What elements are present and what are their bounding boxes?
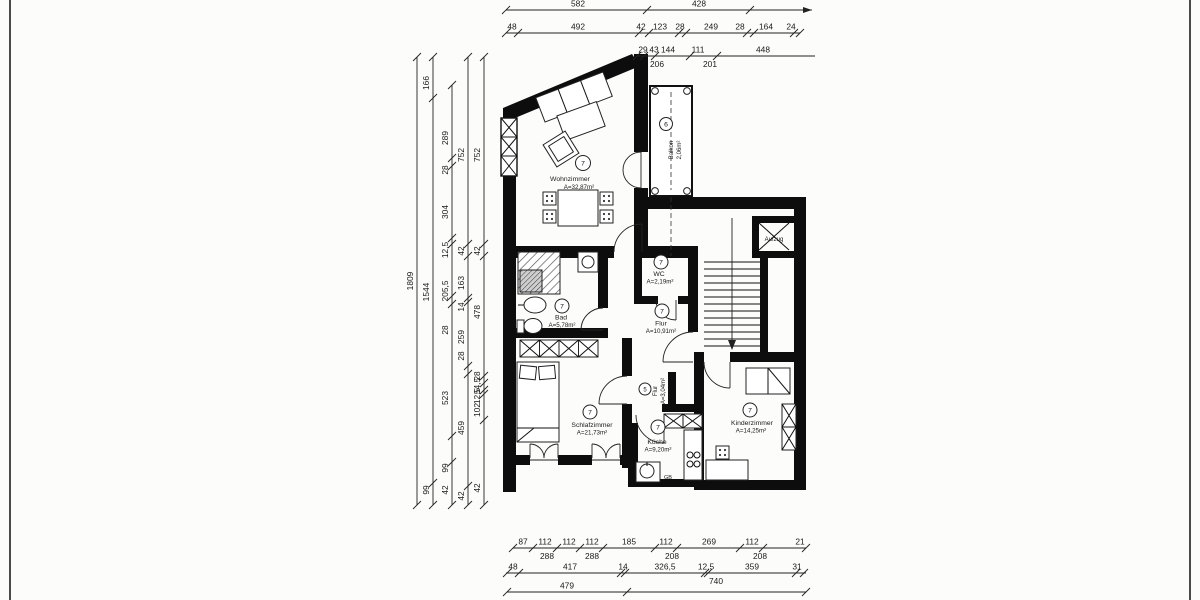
kids-bed <box>746 368 790 394</box>
toilet <box>517 319 542 334</box>
dim-label: 28 <box>440 165 450 175</box>
window-left <box>501 118 517 176</box>
balcony <box>650 86 692 256</box>
dim-label: 48 <box>507 22 517 32</box>
dim-label: 304 <box>440 205 450 219</box>
dim-label: 288 <box>585 551 599 561</box>
dim-label: 582 <box>571 0 585 9</box>
dim-label: 99 <box>421 485 431 495</box>
dim-label: 48 <box>508 562 518 572</box>
bed <box>517 362 559 442</box>
dim-label: 112 <box>585 537 599 547</box>
dim-label: 87 <box>518 537 528 547</box>
dim-label: 417 <box>563 562 577 572</box>
dim-label: 289 <box>440 131 450 145</box>
dim-label: 102 <box>472 403 482 417</box>
dim-label: 492 <box>571 22 585 32</box>
dim-label: 1809 <box>405 271 415 290</box>
dim-label: 208 <box>665 551 679 561</box>
dim-label: 21 <box>795 537 805 547</box>
dim-label: 42 <box>456 491 466 501</box>
wardrobe-kids <box>782 404 796 450</box>
dim-label: 28 <box>456 351 466 361</box>
dim-label: 99 <box>440 463 450 473</box>
dim-label: 112 <box>745 537 759 547</box>
kitchen-cabinet <box>664 414 702 428</box>
room-number: 7 <box>581 161 585 168</box>
dim-label: 523 <box>440 391 450 405</box>
dim-label: 359 <box>745 562 759 572</box>
dim-label: 42 <box>472 246 482 256</box>
dim-label: 28 <box>735 22 745 32</box>
dim-label: 249 <box>704 22 718 32</box>
dim-label: 28 <box>440 325 450 335</box>
dim-arrow <box>803 7 812 13</box>
dim-label: 24 <box>786 22 796 32</box>
room-name-kueche: Küche <box>647 439 666 446</box>
room-number: 6 <box>664 122 668 129</box>
dim-label: 448 <box>756 45 770 55</box>
room-name-wc: WC <box>653 271 664 278</box>
room-area-flur5: A=3,04m² <box>661 378 667 404</box>
dim-label: 42 <box>472 483 482 493</box>
dim-label: 144 <box>661 45 675 55</box>
room-area-wohnzimmer: A=32,87m² <box>564 184 594 191</box>
page-edge-right <box>1189 0 1191 600</box>
room-name-aufzug: Aufzug <box>765 237 784 243</box>
floor-plan-drawing: 7 Wohnzimmer A=32,87m² 6 Balkon 2,06m² 7… <box>0 0 1200 600</box>
page-edge-left <box>9 0 11 600</box>
dim-label: 42 <box>440 485 450 495</box>
kids-desk <box>706 446 748 480</box>
dim-label: 12,5 <box>440 242 450 259</box>
appliance-label-gb: GB <box>664 475 672 481</box>
room-number: 7 <box>588 410 592 417</box>
room-area-flur: A=10,91m² <box>646 328 676 335</box>
room-name-bad: Bad <box>555 315 567 322</box>
dim-label: 206 <box>650 59 664 69</box>
dim-label: 42 <box>456 246 466 256</box>
room-name-balkon: Balkon <box>669 141 675 159</box>
dim-label: 185 <box>622 537 636 547</box>
dim-label: 259 <box>456 330 466 344</box>
floor-plan-page: 7 Wohnzimmer A=32,87m² 6 Balkon 2,06m² 7… <box>0 0 1200 600</box>
room-number: 7 <box>656 425 660 432</box>
sink <box>518 297 546 313</box>
dim-label: 166 <box>421 76 431 90</box>
dim-label: 1544 <box>421 282 431 301</box>
room-area-kinderzimmer: A=14,25m² <box>736 428 766 435</box>
dim-label: 752 <box>456 148 466 162</box>
kitchen-counter <box>684 430 702 480</box>
dim-label: 459 <box>456 421 466 435</box>
dim-label: 205,5 <box>440 280 450 301</box>
dim-label: 111 <box>692 45 705 55</box>
room-name-kinderzimmer: Kinderzimmer <box>731 420 774 427</box>
dim-label: 112 <box>659 537 673 547</box>
room-area-kueche: A=9,20m² <box>645 447 672 454</box>
dining-table <box>543 190 613 226</box>
dim-label: 269 <box>702 537 716 547</box>
washbasin <box>578 252 598 272</box>
room-number: 7 <box>560 304 564 311</box>
room-name-flur: Flur <box>655 321 667 328</box>
dim-label: 31 <box>792 562 802 572</box>
dim-label: 428 <box>692 0 706 9</box>
dim-label: 14 <box>618 562 628 572</box>
dim-label: 112 <box>538 537 552 547</box>
room-number: 7 <box>660 309 664 316</box>
shower <box>518 252 560 294</box>
room-number: 7 <box>748 408 752 415</box>
room-name-schlafzimmer: Schlafzimmer <box>571 422 613 429</box>
dim-label: 12,5 <box>472 388 482 405</box>
dim-label: 164 <box>759 22 773 32</box>
dim-label: 740 <box>709 576 723 586</box>
dim-label: 42 <box>636 22 646 32</box>
dim-label: 479 <box>560 581 574 591</box>
dim-label: 163 <box>456 276 466 290</box>
dim-label: 201 <box>703 59 717 69</box>
dim-label: 478 <box>472 305 482 319</box>
dim-label: 288 <box>540 551 554 561</box>
dim-label: 326,5 <box>655 562 676 572</box>
kitchen-sink <box>636 462 660 482</box>
room-area-schlafzimmer: A=21,73m² <box>577 430 607 437</box>
dim-label: 112 <box>562 537 576 547</box>
dim-label: 43 <box>649 45 659 55</box>
room-area-bad: A=5,78m² <box>549 322 576 329</box>
staircase <box>704 218 760 350</box>
room-name-wohnzimmer: Wohnzimmer <box>550 176 591 183</box>
room-area-balkon: 2,06m² <box>677 141 683 160</box>
dim-label: 12,5 <box>698 562 715 572</box>
dim-label: 29 <box>638 45 648 55</box>
dim-label: 28 <box>675 22 685 32</box>
dim-label: 14 <box>456 302 466 312</box>
stair-direction-arrow <box>728 340 736 350</box>
dim-label: 123 <box>653 22 667 32</box>
wardrobe-bedroom <box>520 340 598 357</box>
room-area-wc: A=2,19m² <box>647 279 674 286</box>
room-number: 7 <box>659 260 663 267</box>
dim-label: 208 <box>753 551 767 561</box>
dim-label: 752 <box>472 148 482 162</box>
room-name-flur5: Flur <box>653 386 659 396</box>
